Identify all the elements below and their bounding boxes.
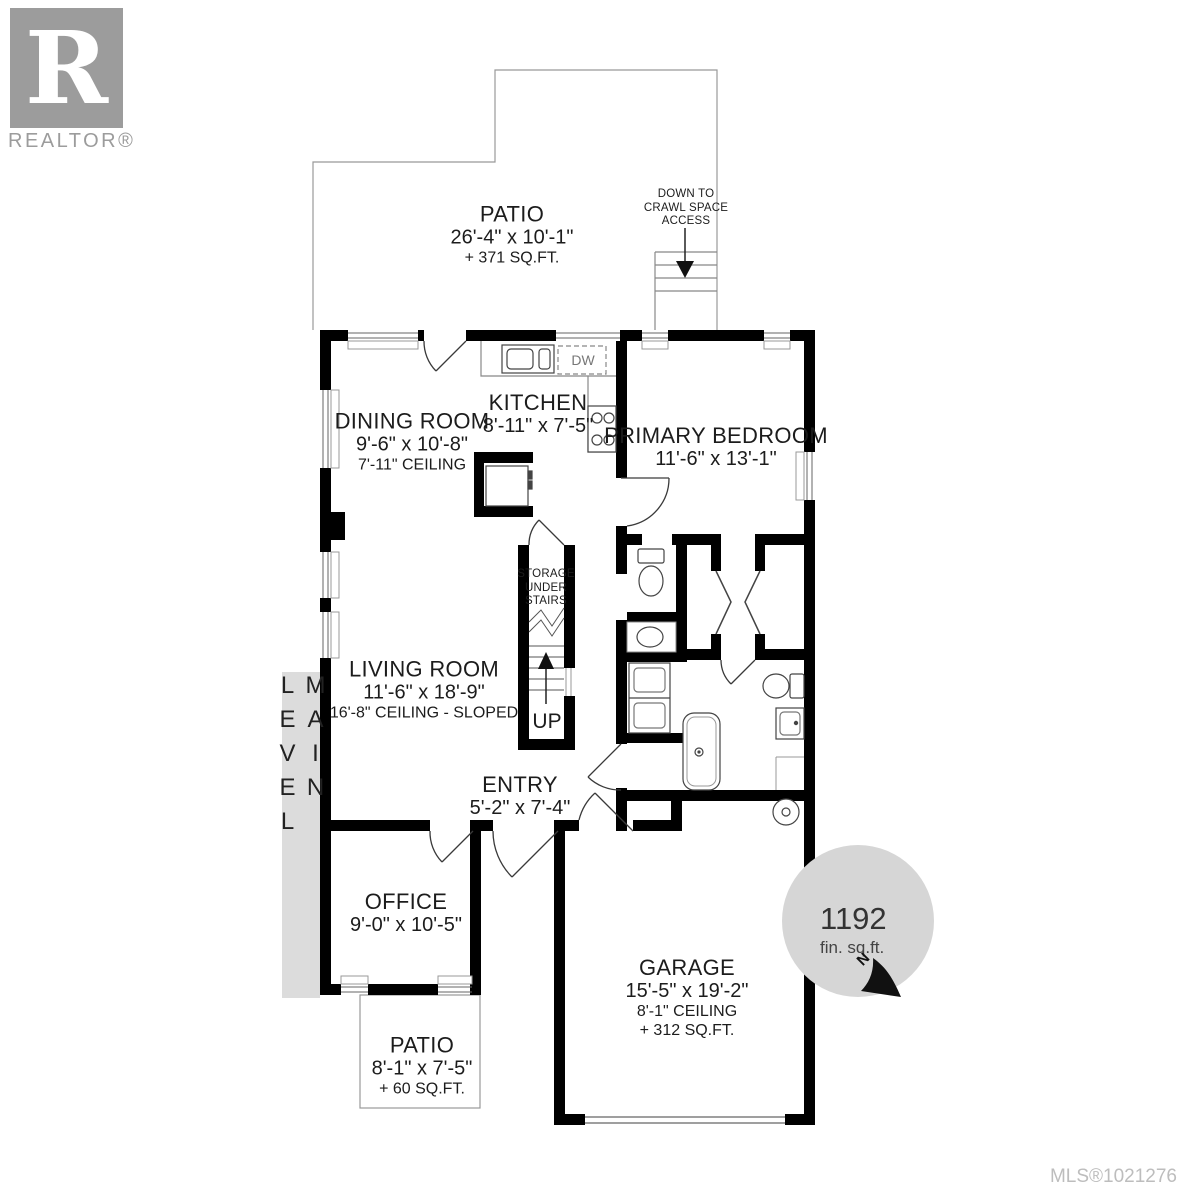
water-tank xyxy=(773,799,799,825)
room-name: PRIMARY BEDROOM xyxy=(604,424,828,448)
room-ceiling: 16'-8" CEILING - SLOPED xyxy=(330,704,518,723)
dishwasher-label: DW xyxy=(571,352,594,368)
room-dims: 9'-6" x 10'-8" xyxy=(335,434,490,456)
main-level-strip: MAIN LEVEL xyxy=(282,672,320,998)
floorplan-drawing xyxy=(0,0,1200,1200)
dining-room-label: DINING ROOM 9'-6" x 10'-8" 7'-11" CEILIN… xyxy=(335,410,490,475)
bath-sink xyxy=(776,708,804,739)
wc-fixtures xyxy=(627,549,676,733)
room-name: PATIO xyxy=(372,1034,473,1058)
room-dims: 9'-0" x 10'-5" xyxy=(350,914,462,936)
garage-label: GARAGE 15'-5" x 19'-2" 8'-1" CEILING + 3… xyxy=(625,956,748,1040)
crawl-space-label: DOWN TO CRAWL SPACE ACCESS xyxy=(637,188,735,229)
room-dims: 26'-4" x 10'-1" xyxy=(450,227,573,249)
room-ceiling: 8'-1" CEILING xyxy=(625,1002,748,1021)
room-area: + 60 SQ.FT. xyxy=(372,1080,473,1099)
mls-number: MLS®1021276 xyxy=(1050,1166,1177,1188)
closet-hall-bath-door xyxy=(721,660,755,684)
stairs-up-label: UP xyxy=(532,710,561,734)
realtor-logo: R xyxy=(10,8,123,128)
bath-corner-lines xyxy=(776,757,804,790)
stairs-up-arrow xyxy=(538,652,554,704)
office-label: OFFICE 9'-0" x 10'-5" xyxy=(350,890,462,936)
room-dims: 15'-5" x 19'-2" xyxy=(625,980,748,1002)
crawl-space-arrow xyxy=(676,228,694,278)
room-name: DINING ROOM xyxy=(335,410,490,434)
room-name: ENTRY xyxy=(470,773,571,797)
wc-toilet xyxy=(638,549,664,596)
realtor-wordmark: REALTOR® xyxy=(8,130,135,153)
patio-dining-door xyxy=(424,341,466,371)
kitchen-label: KITCHEN 8'-11" x 7'-5" xyxy=(483,391,593,437)
room-name: PATIO xyxy=(450,203,573,227)
room-dims: 8'-11" x 7'-5" xyxy=(483,415,593,437)
washer-dryer-stack xyxy=(629,663,670,733)
main-level-label: MAIN LEVEL xyxy=(273,672,329,998)
kitchen-sink xyxy=(502,345,554,373)
garage-door xyxy=(585,1117,785,1123)
room-area: + 371 SQ.FT. xyxy=(450,249,573,268)
living-room-label: LIVING ROOM 11'-6" x 18'-9" 16'-8" CEILI… xyxy=(330,658,518,723)
bathroom-fixtures xyxy=(683,674,804,790)
storage-door xyxy=(529,520,564,545)
bath-toilet xyxy=(763,674,804,698)
room-name: KITCHEN xyxy=(483,391,593,415)
patio-top-label: PATIO 26'-4" x 10'-1" + 371 SQ.FT. xyxy=(450,203,573,268)
total-area-value: 1192 xyxy=(820,901,887,937)
room-name: OFFICE xyxy=(350,890,462,914)
room-ceiling: 7'-11" CEILING xyxy=(335,456,490,475)
bedroom-door xyxy=(621,478,669,526)
primary-bedroom-label: PRIMARY BEDROOM 11'-6" x 13'-1" xyxy=(604,424,828,470)
patio-small-label: PATIO 8'-1" x 7'-5" + 60 SQ.FT. xyxy=(372,1034,473,1099)
storage-label: STORAGE UNDER STAIRS xyxy=(514,568,578,609)
room-dims: 11'-6" x 13'-1" xyxy=(604,448,828,470)
room-dims: 11'-6" x 18'-9" xyxy=(330,682,518,704)
wc-sink xyxy=(637,627,663,647)
room-area: + 312 SQ.FT. xyxy=(625,1021,748,1040)
office-door xyxy=(430,831,473,862)
bifold-closet-doors xyxy=(716,571,760,634)
hall-bath-door xyxy=(588,744,621,790)
floorplan-page: R REALTOR® MLS®1021276 MAIN LEVEL 1192 f… xyxy=(0,0,1200,1200)
room-dims: 5'-2" x 7'-4" xyxy=(470,797,571,819)
bathtub xyxy=(683,713,720,790)
front-door xyxy=(493,831,558,877)
room-name: LIVING ROOM xyxy=(330,658,518,682)
entry-label: ENTRY 5'-2" x 7'-4" xyxy=(470,773,571,819)
realtor-logo-letter: R xyxy=(25,18,108,118)
room-name: GARAGE xyxy=(625,956,748,980)
stair-landing-notch xyxy=(564,668,575,696)
room-dims: 8'-1" x 7'-5" xyxy=(372,1058,473,1080)
fridge xyxy=(486,466,532,506)
